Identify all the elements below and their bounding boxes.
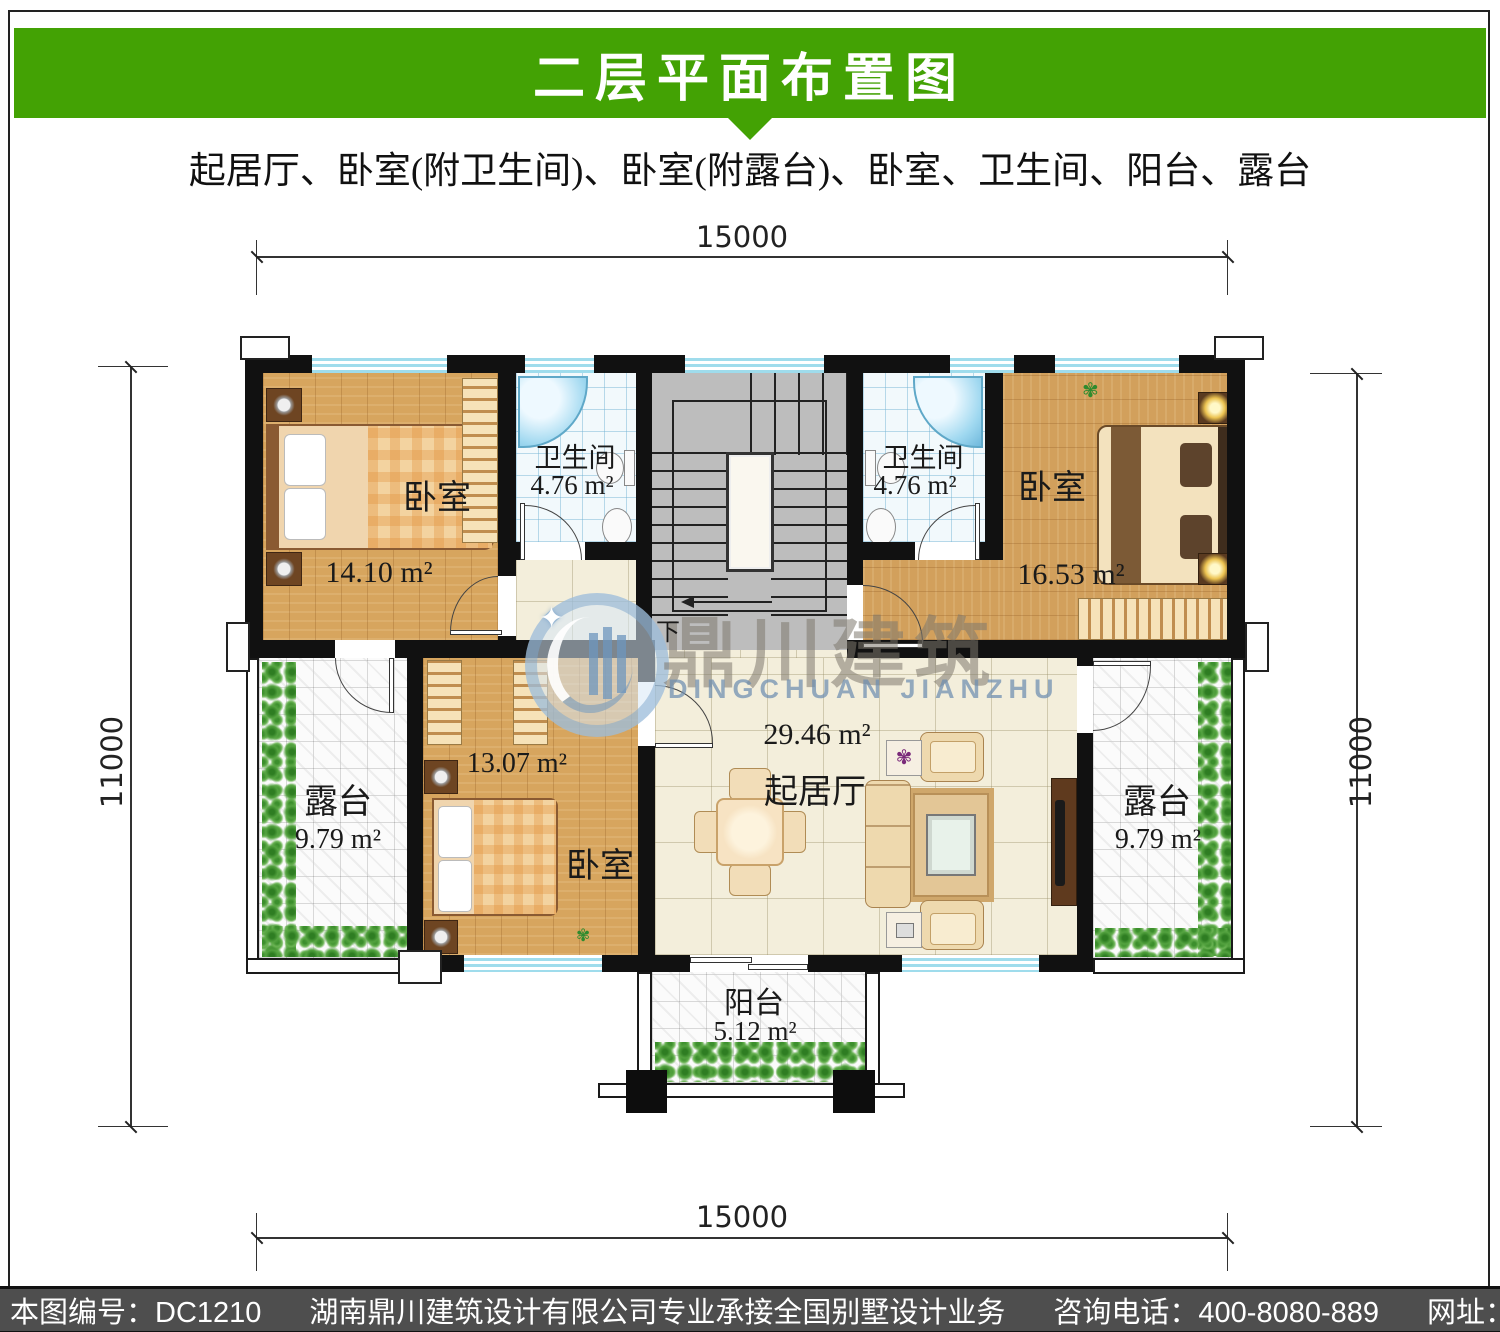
terrace-left-parapet: [246, 958, 407, 974]
wall-segment: [600, 955, 690, 972]
wall-segment: [985, 373, 1003, 560]
door-opening: [335, 640, 395, 658]
sink: [866, 508, 896, 546]
subtitle: 起居厅、卧室(附卫生间)、卧室(附露台)、卧室、卫生间、阳台、露台: [189, 140, 1311, 194]
wall-segment: [847, 542, 915, 560]
page-title: 二层平面布置图: [533, 36, 967, 111]
window: [310, 355, 449, 373]
nightstand: [266, 388, 302, 422]
stairs-down-label: 下: [656, 612, 680, 647]
side-table: [886, 912, 922, 948]
footer-company: 湖南鼎川建筑设计有限公司专业承接全国别墅设计业务: [309, 1289, 1005, 1331]
nightstand: [424, 920, 458, 954]
nightstand: [266, 552, 302, 586]
terrace-right-plants: [1095, 928, 1231, 957]
wall-segment: [498, 542, 520, 560]
room-area: 14.10 m²: [325, 556, 432, 590]
dim-ext: [1310, 373, 1382, 374]
wall-segment: [245, 640, 335, 658]
tv: [1055, 800, 1065, 886]
room-area: 4.76 m²: [530, 470, 613, 501]
bed-double: [432, 798, 558, 916]
header-banner: 二层平面布置图: [14, 28, 1486, 118]
wardrobe: [1078, 598, 1230, 640]
dim-top-line: [257, 256, 1228, 258]
wall-segment: [585, 542, 652, 560]
armchair-cushion: [930, 741, 976, 773]
room-name: 露台: [1123, 774, 1191, 823]
dim-left-value: 11000: [95, 716, 129, 808]
wall-segment: [245, 355, 263, 658]
terrace-left-plants: [262, 926, 407, 957]
room-area: 29.46 m²: [763, 718, 870, 752]
dim-bottom-line: [257, 1237, 1228, 1239]
wall-segment: [1227, 355, 1245, 658]
window: [462, 955, 604, 972]
terrace-right-parapet: [1231, 658, 1245, 974]
side-table: ✾: [886, 740, 922, 776]
bed-blanket: [474, 800, 556, 914]
header-pointer-icon: [728, 118, 772, 140]
wall-cap: [226, 622, 250, 672]
sliding-door-panel: [690, 957, 752, 963]
terrace-left-parapet: [246, 658, 259, 974]
sliding-door-panel: [748, 964, 808, 970]
phone: [896, 923, 914, 938]
plant-icon: ✾: [576, 926, 590, 946]
wall-segment: [498, 636, 516, 658]
toilet-tank: [624, 450, 635, 486]
room-area: 4.76 m²: [873, 470, 956, 501]
nightstand: [424, 760, 458, 794]
dim-ext: [256, 1213, 257, 1271]
watermark-logo-bar: [589, 633, 598, 695]
footer-website: 网址：www.bstzcs.com: [1427, 1289, 1500, 1331]
wall-cap: [398, 950, 442, 984]
bed-pillow: [1180, 443, 1212, 487]
room-area: 9.79 m²: [1115, 824, 1201, 856]
footer-drawing-number: 本图编号：DC1210: [10, 1289, 261, 1331]
watermark-en: DINGCHUAN JIANZHU: [668, 674, 1060, 705]
dim-ext: [256, 240, 257, 295]
dining-chair: [729, 864, 771, 896]
coffee-table: [926, 814, 976, 876]
wall-segment: [808, 955, 900, 972]
plant-icon: ✾: [1082, 378, 1099, 403]
dim-ext: [1227, 1213, 1228, 1271]
dim-ext: [1227, 240, 1228, 295]
footer-bar: 本图编号：DC1210 湖南鼎川建筑设计有限公司专业承接全国别墅设计业务 咨询电…: [0, 1286, 1500, 1332]
stair-void: [726, 452, 774, 572]
bed-pillow: [438, 806, 472, 858]
wall-segment: [638, 746, 655, 972]
watermark-logo-bar: [617, 635, 626, 693]
balcony-column: [833, 1070, 875, 1113]
wall-segment: [1077, 733, 1093, 972]
floorplan-poster: 二层平面布置图 起居厅、卧室(附卫生间)、卧室(附露台)、卧室、卫生间、阳台、露…: [0, 0, 1500, 1332]
window: [683, 355, 826, 373]
wall-cap: [1214, 336, 1264, 360]
sofa: [865, 780, 911, 908]
dim-right-value: 11000: [1344, 716, 1378, 808]
wall-segment: [1037, 955, 1093, 972]
dim-ext: [1310, 1126, 1382, 1127]
terrace-left-plants: [262, 662, 296, 956]
bed-pillow: [284, 434, 326, 486]
bed-pillow: [284, 488, 326, 540]
window: [948, 355, 1016, 373]
dim-bottom-value: 15000: [696, 1200, 788, 1234]
armchair: [920, 732, 984, 782]
room-name: 卧室: [566, 838, 634, 887]
armchair: [920, 900, 984, 950]
door-opening: [498, 576, 516, 636]
watermark-logo-icon: ✦: [525, 593, 669, 737]
room-area: 9.79 m²: [295, 824, 381, 856]
room-area: 16.53 m²: [1017, 558, 1124, 592]
wall-segment: [407, 658, 423, 972]
wardrobe: [427, 660, 462, 745]
bed-pillow: [438, 860, 472, 912]
armchair-cushion: [930, 913, 976, 945]
room-name: 卧室: [403, 470, 471, 519]
sink: [602, 508, 632, 546]
balcony-column: [626, 1070, 667, 1113]
watermark-logo-star-icon: ✦: [539, 601, 564, 636]
dim-top-value: 15000: [696, 220, 788, 254]
watermark-logo-bar: [603, 627, 612, 699]
wall-cap: [240, 336, 290, 360]
window: [900, 955, 1041, 972]
door-opening: [1077, 666, 1093, 733]
footer-phone: 咨询电话：400-8080-889: [1053, 1289, 1379, 1331]
door-leaf: [655, 743, 713, 748]
room-name: 露台: [304, 774, 372, 823]
terrace-right-parapet: [1093, 958, 1245, 974]
wall-cap: [1245, 622, 1269, 672]
terrace-right-plants: [1198, 662, 1231, 956]
room-area: 5.12 m²: [713, 1016, 796, 1047]
room-name: 起居厅: [764, 764, 866, 813]
bed-headboard: [268, 426, 279, 548]
wall-segment: [980, 542, 1003, 560]
window: [523, 355, 596, 373]
room-name: 卧室: [1018, 460, 1086, 509]
door-leaf: [975, 503, 980, 560]
window: [1053, 355, 1181, 373]
room-area: 13.07 m²: [467, 748, 567, 780]
wall-segment: [1077, 658, 1093, 666]
dim-left-line: [130, 367, 132, 1127]
